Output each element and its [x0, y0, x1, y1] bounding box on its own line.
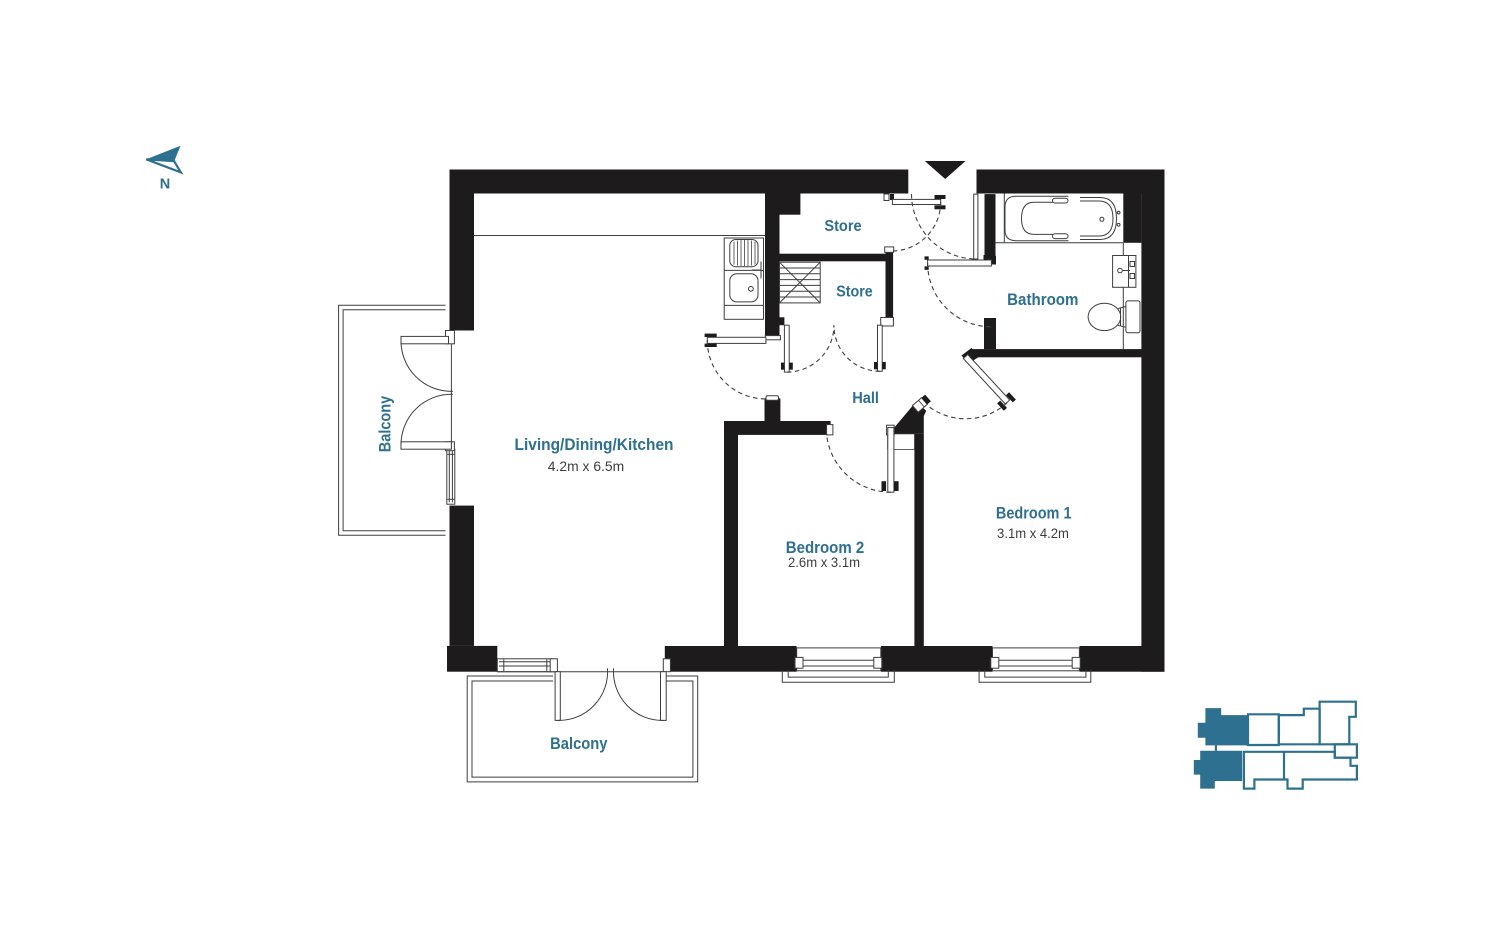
svg-text:Bathroom: Bathroom	[1007, 291, 1078, 309]
svg-text:Living/Dining/Kitchen: Living/Dining/Kitchen	[515, 436, 674, 454]
svg-text:Balcony: Balcony	[377, 395, 395, 452]
svg-text:3.1m x 4.2m: 3.1m x 4.2m	[997, 526, 1069, 541]
svg-text:Balcony: Balcony	[550, 735, 608, 753]
svg-text:Hall: Hall	[852, 390, 879, 407]
svg-text:4.2m x 6.5m: 4.2m x 6.5m	[548, 459, 624, 474]
svg-text:N: N	[160, 176, 170, 192]
svg-text:Store: Store	[836, 284, 873, 301]
svg-text:Bedroom 1: Bedroom 1	[996, 505, 1072, 523]
svg-text:Store: Store	[824, 218, 862, 235]
svg-text:2.6m x 3.1m: 2.6m x 3.1m	[788, 555, 860, 570]
